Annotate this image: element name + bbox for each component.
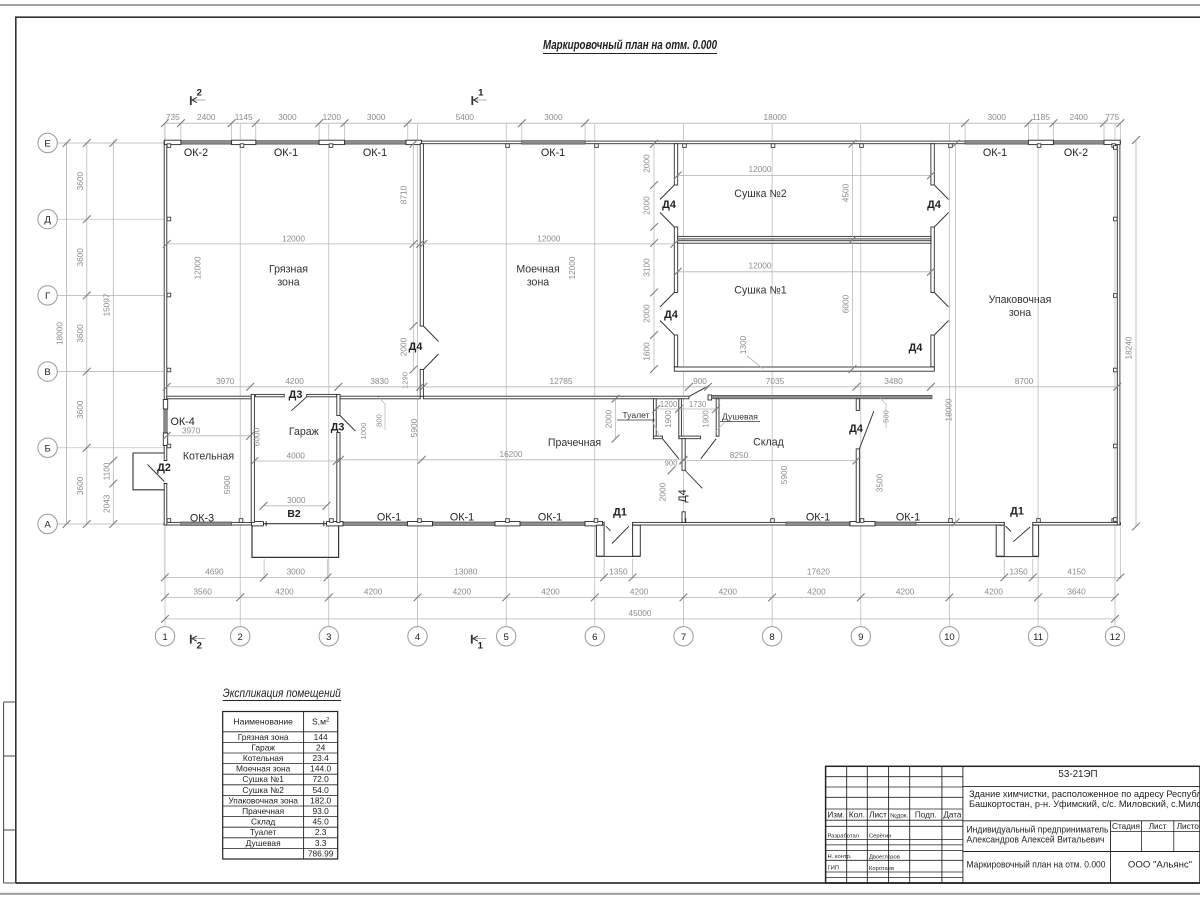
svg-text:ОК-3: ОК-3 <box>190 513 214 525</box>
svg-text:12000: 12000 <box>282 233 305 243</box>
svg-text:6: 6 <box>592 632 597 643</box>
svg-text:3600: 3600 <box>75 248 85 267</box>
svg-text:2400: 2400 <box>1069 112 1088 122</box>
svg-text:В: В <box>44 367 50 378</box>
svg-text:4150: 4150 <box>1067 567 1086 577</box>
svg-text:4500: 4500 <box>840 183 850 202</box>
svg-text:3560: 3560 <box>193 587 212 597</box>
svg-text:ОК-1: ОК-1 <box>377 512 401 524</box>
svg-text:2000: 2000 <box>642 304 652 323</box>
svg-text:4: 4 <box>415 632 421 643</box>
svg-text:Башкортостан, р-н. Уфимский, с: Башкортостан, р-н. Уфимский, с/с. Миловс… <box>969 799 1200 809</box>
svg-text:Е: Е <box>44 139 50 150</box>
svg-text:6000: 6000 <box>840 294 850 313</box>
svg-text:1100: 1100 <box>101 462 111 480</box>
svg-text:775: 775 <box>1105 112 1119 122</box>
svg-text:Моечная: Моечная <box>516 264 559 276</box>
svg-text:735: 735 <box>166 112 180 122</box>
svg-text:8: 8 <box>769 632 774 643</box>
svg-text:Котельная: Котельная <box>183 451 234 463</box>
svg-text:Г: Г <box>45 291 51 302</box>
svg-text:2: 2 <box>197 641 202 652</box>
svg-text:15097: 15097 <box>101 293 111 316</box>
svg-text:3000: 3000 <box>287 567 306 577</box>
svg-text:3600: 3600 <box>75 171 85 190</box>
svg-text:7: 7 <box>681 632 686 643</box>
svg-text:Склад: Склад <box>251 817 275 827</box>
svg-text:Упаковочная: Упаковочная <box>989 294 1052 306</box>
svg-text:2: 2 <box>197 88 202 99</box>
svg-text:3000: 3000 <box>988 112 1007 122</box>
svg-text:Наименование: Наименование <box>233 717 293 727</box>
svg-text:3640: 3640 <box>1067 587 1086 597</box>
svg-text:Изм.: Изм. <box>827 811 845 820</box>
svg-text:ОК-2: ОК-2 <box>1064 147 1088 159</box>
svg-text:12785: 12785 <box>549 376 572 386</box>
svg-text:Склад: Склад <box>753 437 784 449</box>
svg-text:В2: В2 <box>287 509 301 520</box>
svg-text:18000: 18000 <box>764 112 787 122</box>
svg-text:ОК-1: ОК-1 <box>541 147 565 159</box>
svg-text:72.0: 72.0 <box>312 774 329 784</box>
svg-text:5: 5 <box>504 632 509 643</box>
svg-text:ОК-2: ОК-2 <box>184 147 208 159</box>
svg-text:Маркировочный план на отм. 0.0: Маркировочный план на отм. 0.000 <box>543 37 717 52</box>
svg-text:10: 10 <box>944 632 955 643</box>
svg-text:Коротаев: Коротаев <box>869 866 894 872</box>
svg-text:5900: 5900 <box>409 418 419 437</box>
svg-text:54.0: 54.0 <box>312 785 329 795</box>
svg-text:12000: 12000 <box>748 164 771 174</box>
svg-text:Душевая: Душевая <box>722 412 758 422</box>
svg-text:17620: 17620 <box>807 567 830 577</box>
svg-text:Экспликация помещений: Экспликация помещений <box>223 686 341 700</box>
svg-text:1600: 1600 <box>642 342 652 361</box>
svg-text:Душевая: Душевая <box>246 838 281 848</box>
svg-text:1350: 1350 <box>609 567 628 577</box>
svg-text:3830: 3830 <box>370 376 389 386</box>
svg-text:Котельная: Котельная <box>243 753 284 763</box>
svg-text:12000: 12000 <box>192 256 202 279</box>
svg-text:Сушка №1: Сушка №1 <box>734 285 787 297</box>
svg-text:1: 1 <box>478 88 484 99</box>
svg-text:5400: 5400 <box>456 112 475 122</box>
svg-text:2000: 2000 <box>642 154 652 173</box>
svg-text:2: 2 <box>238 632 243 643</box>
svg-text:3600: 3600 <box>75 324 85 343</box>
svg-text:3000: 3000 <box>367 112 386 122</box>
svg-text:Индивидуальный предприниматель: Индивидуальный предприниматель <box>967 824 1109 834</box>
svg-text:Здание химчистки, расположенн: Здание химчистки, расположенное по адрес… <box>969 789 1200 799</box>
svg-text:7035: 7035 <box>766 376 785 386</box>
svg-text:18000: 18000 <box>55 322 65 345</box>
svg-text:4200: 4200 <box>364 587 383 597</box>
svg-text:1900: 1900 <box>702 410 711 428</box>
svg-text:Грязная: Грязная <box>269 264 308 276</box>
svg-text:Листов: Листов <box>1177 822 1200 831</box>
svg-text:Прачечная: Прачечная <box>548 437 601 449</box>
svg-text:13080: 13080 <box>454 567 477 577</box>
svg-text:4200: 4200 <box>541 587 560 597</box>
svg-text:Сушка №1: Сушка №1 <box>242 774 284 784</box>
svg-text:Н. контр.: Н. контр. <box>828 854 852 860</box>
svg-text:ОК-1: ОК-1 <box>983 147 1007 159</box>
svg-text:8700: 8700 <box>1015 376 1034 386</box>
svg-text:4000: 4000 <box>286 451 305 461</box>
svg-text:4200: 4200 <box>985 587 1004 597</box>
svg-text:Туалет: Туалет <box>250 827 277 837</box>
svg-text:ОК-1: ОК-1 <box>538 512 562 524</box>
svg-text:Подп.: Подп. <box>915 811 937 820</box>
svg-text:ОК-1: ОК-1 <box>450 512 474 524</box>
svg-text:Д4: Д4 <box>664 309 678 321</box>
svg-text:ООО "Альянс": ООО "Альянс" <box>1128 860 1192 871</box>
svg-text:Гараж: Гараж <box>289 426 320 438</box>
svg-text:Д1: Д1 <box>613 507 627 519</box>
svg-text:Д: Д <box>44 215 51 226</box>
svg-text:4200: 4200 <box>285 376 304 386</box>
svg-text:182.0: 182.0 <box>310 795 331 805</box>
svg-text:Д2: Д2 <box>157 462 171 474</box>
svg-text:1350: 1350 <box>1009 567 1028 577</box>
svg-text:8710: 8710 <box>399 185 409 204</box>
svg-text:зона: зона <box>527 277 549 289</box>
svg-text:900: 900 <box>665 459 678 468</box>
svg-text:144.0: 144.0 <box>310 764 331 774</box>
svg-text:1: 1 <box>162 632 167 643</box>
svg-text:ОК-1: ОК-1 <box>896 512 920 524</box>
svg-text:1185: 1185 <box>1032 112 1050 122</box>
svg-text:Д4: Д4 <box>677 489 689 502</box>
svg-text:2.3: 2.3 <box>315 827 327 837</box>
svg-text:2000: 2000 <box>399 337 409 356</box>
svg-text:18240: 18240 <box>1124 336 1134 359</box>
svg-text:24: 24 <box>316 742 326 752</box>
svg-text:5900: 5900 <box>222 475 232 494</box>
svg-text:800: 800 <box>375 414 384 427</box>
svg-text:1730: 1730 <box>689 400 707 409</box>
svg-text:Д4: Д4 <box>409 341 423 353</box>
svg-text:4200: 4200 <box>453 587 472 597</box>
svg-text:Серёгин: Серёгин <box>869 834 891 840</box>
svg-text:3600: 3600 <box>75 476 85 495</box>
svg-text:Сушка №2: Сушка №2 <box>734 188 787 200</box>
svg-text:18000: 18000 <box>943 398 953 421</box>
svg-text:3.3: 3.3 <box>315 838 327 848</box>
svg-text:Маркировочный план на отм. 0.0: Маркировочный план на отм. 0.000 <box>967 859 1106 870</box>
svg-text:Грязная зона: Грязная зона <box>238 732 289 742</box>
svg-text:Прачечная: Прачечная <box>242 806 284 816</box>
svg-text:4200: 4200 <box>807 587 826 597</box>
svg-text:2000: 2000 <box>604 409 614 428</box>
svg-text:144: 144 <box>314 732 328 742</box>
svg-text:12000: 12000 <box>537 233 560 243</box>
svg-text:Лист: Лист <box>1149 822 1167 831</box>
svg-text:4690: 4690 <box>205 567 224 577</box>
svg-text:Д3: Д3 <box>331 422 345 434</box>
svg-text:2000: 2000 <box>658 482 668 501</box>
svg-text:ГИП: ГИП <box>828 866 839 872</box>
svg-text:Д4: Д4 <box>909 342 923 354</box>
svg-text:6000: 6000 <box>251 427 261 446</box>
svg-text:1000: 1000 <box>359 423 368 440</box>
svg-text:3100: 3100 <box>642 258 652 277</box>
svg-text:786.99: 786.99 <box>308 848 334 858</box>
svg-text:Туалет: Туалет <box>622 410 649 420</box>
svg-text:Д1: Д1 <box>1010 506 1024 518</box>
svg-text:23.4: 23.4 <box>312 753 329 763</box>
svg-text:9: 9 <box>858 632 863 643</box>
svg-text:ОК-1: ОК-1 <box>806 512 830 524</box>
svg-text:Моечная зона: Моечная зона <box>236 764 291 774</box>
svg-text:Д4: Д4 <box>662 199 676 211</box>
svg-text:Упаковочная зона: Упаковочная зона <box>228 795 298 805</box>
svg-text:№док.: №док. <box>890 813 908 820</box>
svg-text:3970: 3970 <box>216 376 235 386</box>
svg-text:А: А <box>44 520 51 531</box>
svg-text:Б: Б <box>44 443 50 454</box>
svg-text:11: 11 <box>1033 632 1043 643</box>
svg-text:4200: 4200 <box>275 587 294 597</box>
svg-text:2043: 2043 <box>101 494 111 513</box>
svg-text:8250: 8250 <box>730 450 749 460</box>
svg-text:1200: 1200 <box>660 400 678 409</box>
svg-text:Стадия: Стадия <box>1112 822 1140 831</box>
svg-text:16200: 16200 <box>499 449 522 459</box>
svg-text:3000: 3000 <box>278 112 297 122</box>
svg-text:1145: 1145 <box>235 112 253 122</box>
svg-text:Сушка №2: Сушка №2 <box>242 785 284 795</box>
svg-text:900: 900 <box>693 376 707 386</box>
svg-text:3000: 3000 <box>544 112 563 122</box>
svg-text:5900: 5900 <box>779 465 789 484</box>
svg-text:Д4: Д4 <box>927 199 941 211</box>
svg-text:зона: зона <box>1009 307 1031 319</box>
svg-text:Дата: Дата <box>943 811 962 820</box>
svg-text:3600: 3600 <box>75 400 85 419</box>
svg-text:Д3: Д3 <box>289 389 303 401</box>
svg-text:1: 1 <box>478 641 484 652</box>
svg-text:3000: 3000 <box>287 495 306 505</box>
svg-text:93.0: 93.0 <box>312 806 329 816</box>
svg-text:53-21ЭП: 53-21ЭП <box>1058 769 1097 780</box>
svg-text:45.0: 45.0 <box>312 817 329 827</box>
svg-text:4200: 4200 <box>896 587 915 597</box>
svg-text:ОК-1: ОК-1 <box>274 147 298 159</box>
svg-text:Лист: Лист <box>869 811 887 820</box>
svg-text:3480: 3480 <box>884 376 903 386</box>
svg-text:зона: зона <box>277 277 299 289</box>
svg-text:Д4: Д4 <box>849 423 863 435</box>
svg-text:ОК-1: ОК-1 <box>363 147 387 159</box>
svg-text:1900: 1900 <box>664 410 673 428</box>
svg-text:Двоеглазов: Двоеглазов <box>869 854 900 860</box>
svg-text:2400: 2400 <box>197 112 216 122</box>
svg-text:3500: 3500 <box>874 473 884 492</box>
svg-text:1300: 1300 <box>738 335 748 354</box>
svg-text:Разработал: Разработал <box>828 834 860 840</box>
svg-text:Гараж: Гараж <box>251 742 275 752</box>
svg-text:12000: 12000 <box>567 256 577 279</box>
svg-text:4200: 4200 <box>630 587 649 597</box>
svg-text:3: 3 <box>326 632 331 643</box>
svg-text:Александров Алексей Витальевич: Александров Алексей Витальевич <box>967 835 1105 845</box>
svg-text:2000: 2000 <box>642 196 652 215</box>
svg-text:12: 12 <box>1110 632 1121 643</box>
svg-text:Кол.: Кол. <box>849 811 865 820</box>
svg-text:12000: 12000 <box>748 261 771 271</box>
svg-text:1200: 1200 <box>323 112 342 122</box>
svg-text:45000: 45000 <box>628 608 651 618</box>
svg-text:ОК-4: ОК-4 <box>170 416 194 428</box>
svg-text:4200: 4200 <box>719 587 738 597</box>
